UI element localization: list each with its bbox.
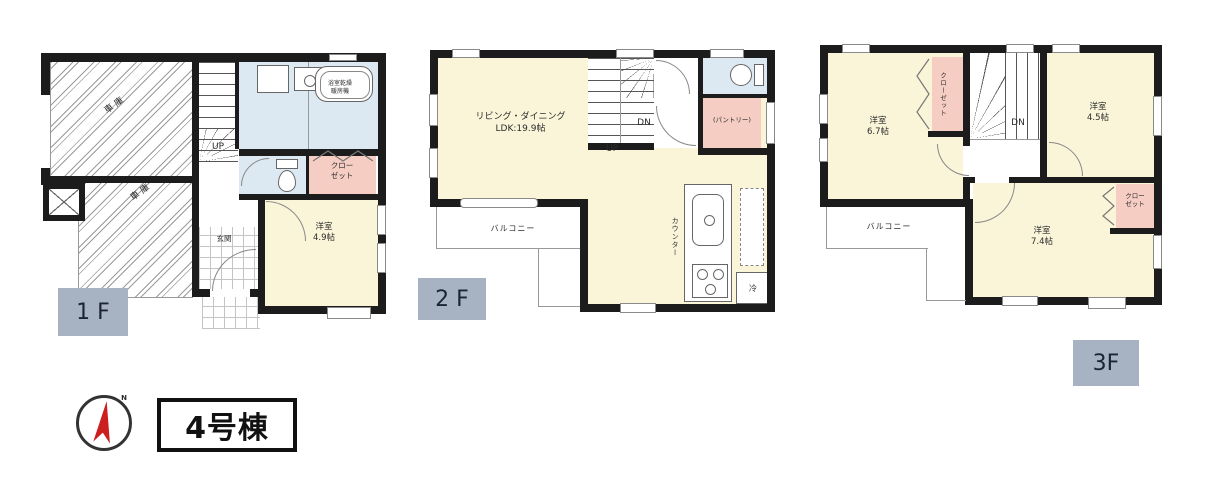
bedroom-label-1f: 洋室4.9帖 — [300, 222, 348, 244]
window — [620, 303, 656, 313]
wall — [767, 50, 775, 312]
burner — [705, 284, 716, 295]
bedroom-67-label: 洋室6.7帖 — [854, 116, 902, 138]
closet-label-1f: クローゼット — [318, 161, 366, 181]
ldk-line2: LDK:19.9帖 — [448, 124, 593, 136]
bedroom-45-label: 洋室4.5帖 — [1074, 102, 1122, 124]
bedroom-74-label: 洋室7.4帖 — [1018, 226, 1066, 248]
fridge-icon: 冷 — [736, 272, 770, 304]
wall — [306, 156, 309, 197]
closet-line2: ゼット — [1116, 200, 1154, 208]
room-closet-tall — [932, 57, 963, 131]
bath-dryer-line1: 浴室乾燥 — [318, 80, 362, 88]
balcony-railing — [926, 249, 966, 301]
stairs-up-label: UP — [196, 142, 240, 154]
entrance-label: 玄関 — [204, 234, 244, 244]
wall — [192, 53, 199, 296]
wall — [430, 50, 438, 207]
bedroom-74-line2: 7.4帖 — [1018, 237, 1066, 248]
window — [1002, 296, 1038, 306]
window — [842, 44, 870, 53]
wall — [1110, 228, 1154, 234]
wall — [235, 62, 239, 149]
toilet-tank-icon — [754, 64, 764, 86]
window — [616, 49, 654, 58]
bedroom-45-line1: 洋室 — [1074, 102, 1122, 113]
wall — [41, 53, 50, 95]
window — [819, 94, 828, 124]
wall — [698, 58, 703, 150]
wall — [820, 45, 828, 207]
building-name-label: 4号棟 — [185, 403, 269, 447]
wall — [703, 94, 767, 98]
counter-label: カウンター — [670, 196, 679, 278]
closet-vertical-label: クローゼット — [938, 61, 946, 127]
wall — [1040, 53, 1047, 177]
window — [710, 49, 744, 58]
stairs-down-label: DN — [1000, 118, 1036, 130]
closet-line2: ゼット — [318, 171, 366, 181]
window — [819, 138, 828, 162]
bath-dryer-label: 浴室乾燥暖房機 — [318, 80, 362, 96]
balcony-window — [460, 198, 538, 208]
compass-north-label: N — [119, 394, 129, 403]
faucet — [704, 215, 715, 226]
bifold-door-icon — [916, 58, 930, 130]
compass-needle — [86, 399, 121, 446]
burner — [697, 269, 708, 280]
window — [1052, 44, 1080, 53]
wall — [46, 176, 192, 183]
toilet-tank-icon — [276, 159, 298, 169]
window — [1153, 96, 1162, 136]
porch-tile — [202, 297, 260, 329]
bay-window — [327, 307, 371, 319]
window — [429, 94, 438, 126]
stair-divider — [620, 58, 621, 143]
bedroom-67-line1: 洋室 — [854, 116, 902, 127]
wall — [580, 304, 775, 312]
window — [452, 49, 480, 58]
closet-label-3f: クローゼット — [1116, 192, 1154, 209]
bedroom-45-line2: 4.5帖 — [1074, 113, 1122, 124]
garage-hatch-upper — [50, 62, 193, 180]
bedroom-line1: 洋室 — [300, 222, 348, 233]
bedroom-line2: 4.9帖 — [300, 233, 348, 244]
stove-icon — [692, 264, 728, 298]
window — [377, 243, 386, 273]
ldk-label: リビング・ダイニングLDK:19.9帖 — [448, 112, 593, 135]
stairs-down-label: DN — [626, 118, 662, 130]
window — [377, 205, 386, 235]
wall — [580, 207, 588, 312]
wall — [820, 199, 973, 207]
floor-plan-sheet: 車庫 車庫 UP 浴室乾燥暖房機 クローゼット 洋室4.9帖 玄関 冷 — [0, 0, 1206, 500]
bifold-door-icon — [1102, 186, 1115, 226]
window — [329, 54, 357, 61]
balcony-label-2f: バルコニー — [468, 224, 558, 234]
window — [766, 102, 775, 144]
ldk-line1: リビング・ダイニング — [448, 112, 593, 124]
wall — [965, 199, 973, 305]
building-name-box: 4号棟 — [157, 398, 297, 452]
floor-badge-3f: 3F — [1073, 340, 1139, 386]
window — [1006, 44, 1034, 53]
kitchen-sink-icon — [692, 194, 724, 246]
cupboard — [740, 188, 764, 266]
wall — [820, 45, 1162, 53]
wall — [965, 297, 1162, 305]
bedroom-74-line1: 洋室 — [1018, 226, 1066, 237]
partition-line — [970, 139, 1040, 140]
window — [429, 148, 438, 178]
pantry-label: (パントリー) — [700, 116, 764, 124]
stairs-winder-2f — [620, 58, 654, 98]
wall — [378, 53, 386, 313]
bay-window — [1088, 297, 1126, 309]
washer-icon — [257, 65, 289, 93]
floor-badge-1f: 1 F — [58, 288, 128, 336]
bath-dryer-line2: 暖房機 — [318, 88, 362, 96]
stairs-up-label: UP — [592, 144, 632, 156]
toilet-bowl-icon — [278, 170, 296, 192]
floor-badge-2f: 2 F — [418, 278, 486, 320]
window — [1153, 235, 1162, 269]
compass-icon: N — [76, 395, 132, 451]
toilet-bowl-icon — [730, 64, 752, 86]
closet-line1: クロー — [318, 161, 366, 171]
wall — [698, 148, 767, 155]
wall — [928, 131, 968, 137]
balcony-label-3f: バルコニー — [844, 222, 934, 232]
burner — [713, 269, 724, 280]
shaft-x-box — [43, 183, 85, 221]
balcony-railing — [538, 249, 580, 307]
bedroom-67-line2: 6.7帖 — [854, 127, 902, 138]
